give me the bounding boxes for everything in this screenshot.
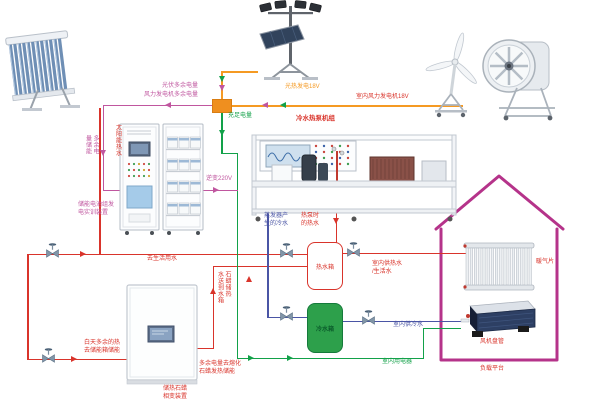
cold-tank-label: 冷水箱 xyxy=(316,324,334,333)
flow-arrow xyxy=(219,76,225,82)
flow-arrow xyxy=(262,102,268,108)
pv-generation-label: 光热发电18V xyxy=(285,84,320,92)
pipe-paraffin-up xyxy=(213,266,215,349)
flow-arrow xyxy=(287,355,293,361)
sufficient-power-label: 充足电量 xyxy=(228,113,252,121)
indoor-appliance-label: 室内用电器 xyxy=(382,359,412,367)
flow-arrow xyxy=(219,130,225,136)
duct-fan-image xyxy=(483,40,555,120)
valve-icon xyxy=(279,305,294,322)
wire-house-up xyxy=(423,328,425,359)
valve-icon xyxy=(361,309,376,326)
wire-main-down xyxy=(237,153,239,359)
pipe-left-down xyxy=(27,254,29,360)
paraffin-device-label: 储热石蜡 相变装置 xyxy=(147,386,203,401)
wire-excess-left xyxy=(103,105,213,107)
battery-cabinet-image xyxy=(119,120,207,240)
flow-arrow xyxy=(165,102,171,108)
battery-device-label: 储能电池组发 电实训装置 xyxy=(78,202,114,217)
heat-pump-title: 冷水热泵机组 xyxy=(296,115,335,123)
to-domestic-water-label: 去生活用水 xyxy=(147,256,177,264)
solar-hot-water-label: 太阳能热水 xyxy=(113,124,121,157)
wire-excess-down xyxy=(103,105,105,190)
flow-arrow xyxy=(248,355,254,361)
radiator-label: 暖气片 xyxy=(536,259,554,267)
heat-pump-image xyxy=(246,125,464,227)
valve-icon xyxy=(346,241,361,258)
flow-arrow xyxy=(280,102,286,108)
indoor-wind-generation-label: 室内风力发电机18V xyxy=(356,94,409,102)
indoor-cold-supply-label: 室内供冷水 xyxy=(393,322,423,330)
excess-melt-paraffin-label: 多余电量去熔化 石蜡发热储能 xyxy=(199,361,241,376)
hot-tank-label: 热水箱 xyxy=(316,262,334,271)
wind-equipment-image xyxy=(413,28,570,122)
flow-arrow xyxy=(219,85,225,91)
pipe-to-hot-tank xyxy=(28,254,308,256)
flow-arrow xyxy=(100,150,106,156)
paraffin-hot-to-tank-label: 石蜡储热 水送到水箱 xyxy=(215,271,230,304)
flow-arrow xyxy=(246,276,252,282)
excess-storage-label: 多余电 量储能 xyxy=(83,135,98,155)
junction-box xyxy=(212,99,232,113)
valve-icon xyxy=(41,347,56,364)
load-platform-label: 负载平台 xyxy=(480,366,504,374)
valve-icon xyxy=(279,242,294,259)
system-diagram: 热水箱 冷水箱 xyxy=(0,0,600,419)
indoor-hot-supply-label: 室内供热水 /生活水 xyxy=(372,261,402,276)
wind-turbine-image xyxy=(425,32,478,117)
pipe-solar-down xyxy=(99,108,101,255)
daytime-excess-heat-label: 白天多余的热 去储能箱储能 xyxy=(84,340,120,355)
paraffin-cabinet-image xyxy=(124,284,202,388)
fan-coil-label: 风机盘管 xyxy=(480,339,504,347)
pipe-paraffin-to-tank xyxy=(213,266,308,268)
cold-water-tank: 冷水箱 xyxy=(307,303,343,353)
flow-arrow xyxy=(71,356,77,362)
solar-collector-image xyxy=(2,18,107,114)
wind-excess-label: 风力发电机多余电量 xyxy=(116,92,198,100)
valve-icon xyxy=(45,242,60,259)
evaporator-cold-label: 蒸发器产 生的冷水 xyxy=(264,213,288,228)
inverter-label: 逆变220V xyxy=(206,176,232,184)
heat-pump-hot-label: 热泵时 的热水 xyxy=(301,213,319,228)
pv-excess-label: 光伏多余电量 xyxy=(116,83,198,91)
hot-water-tank: 热水箱 xyxy=(307,242,343,290)
flow-arrow xyxy=(80,251,86,257)
flow-arrow xyxy=(213,187,219,193)
radiator-image xyxy=(461,241,539,295)
pv-tracker-image xyxy=(248,0,333,82)
